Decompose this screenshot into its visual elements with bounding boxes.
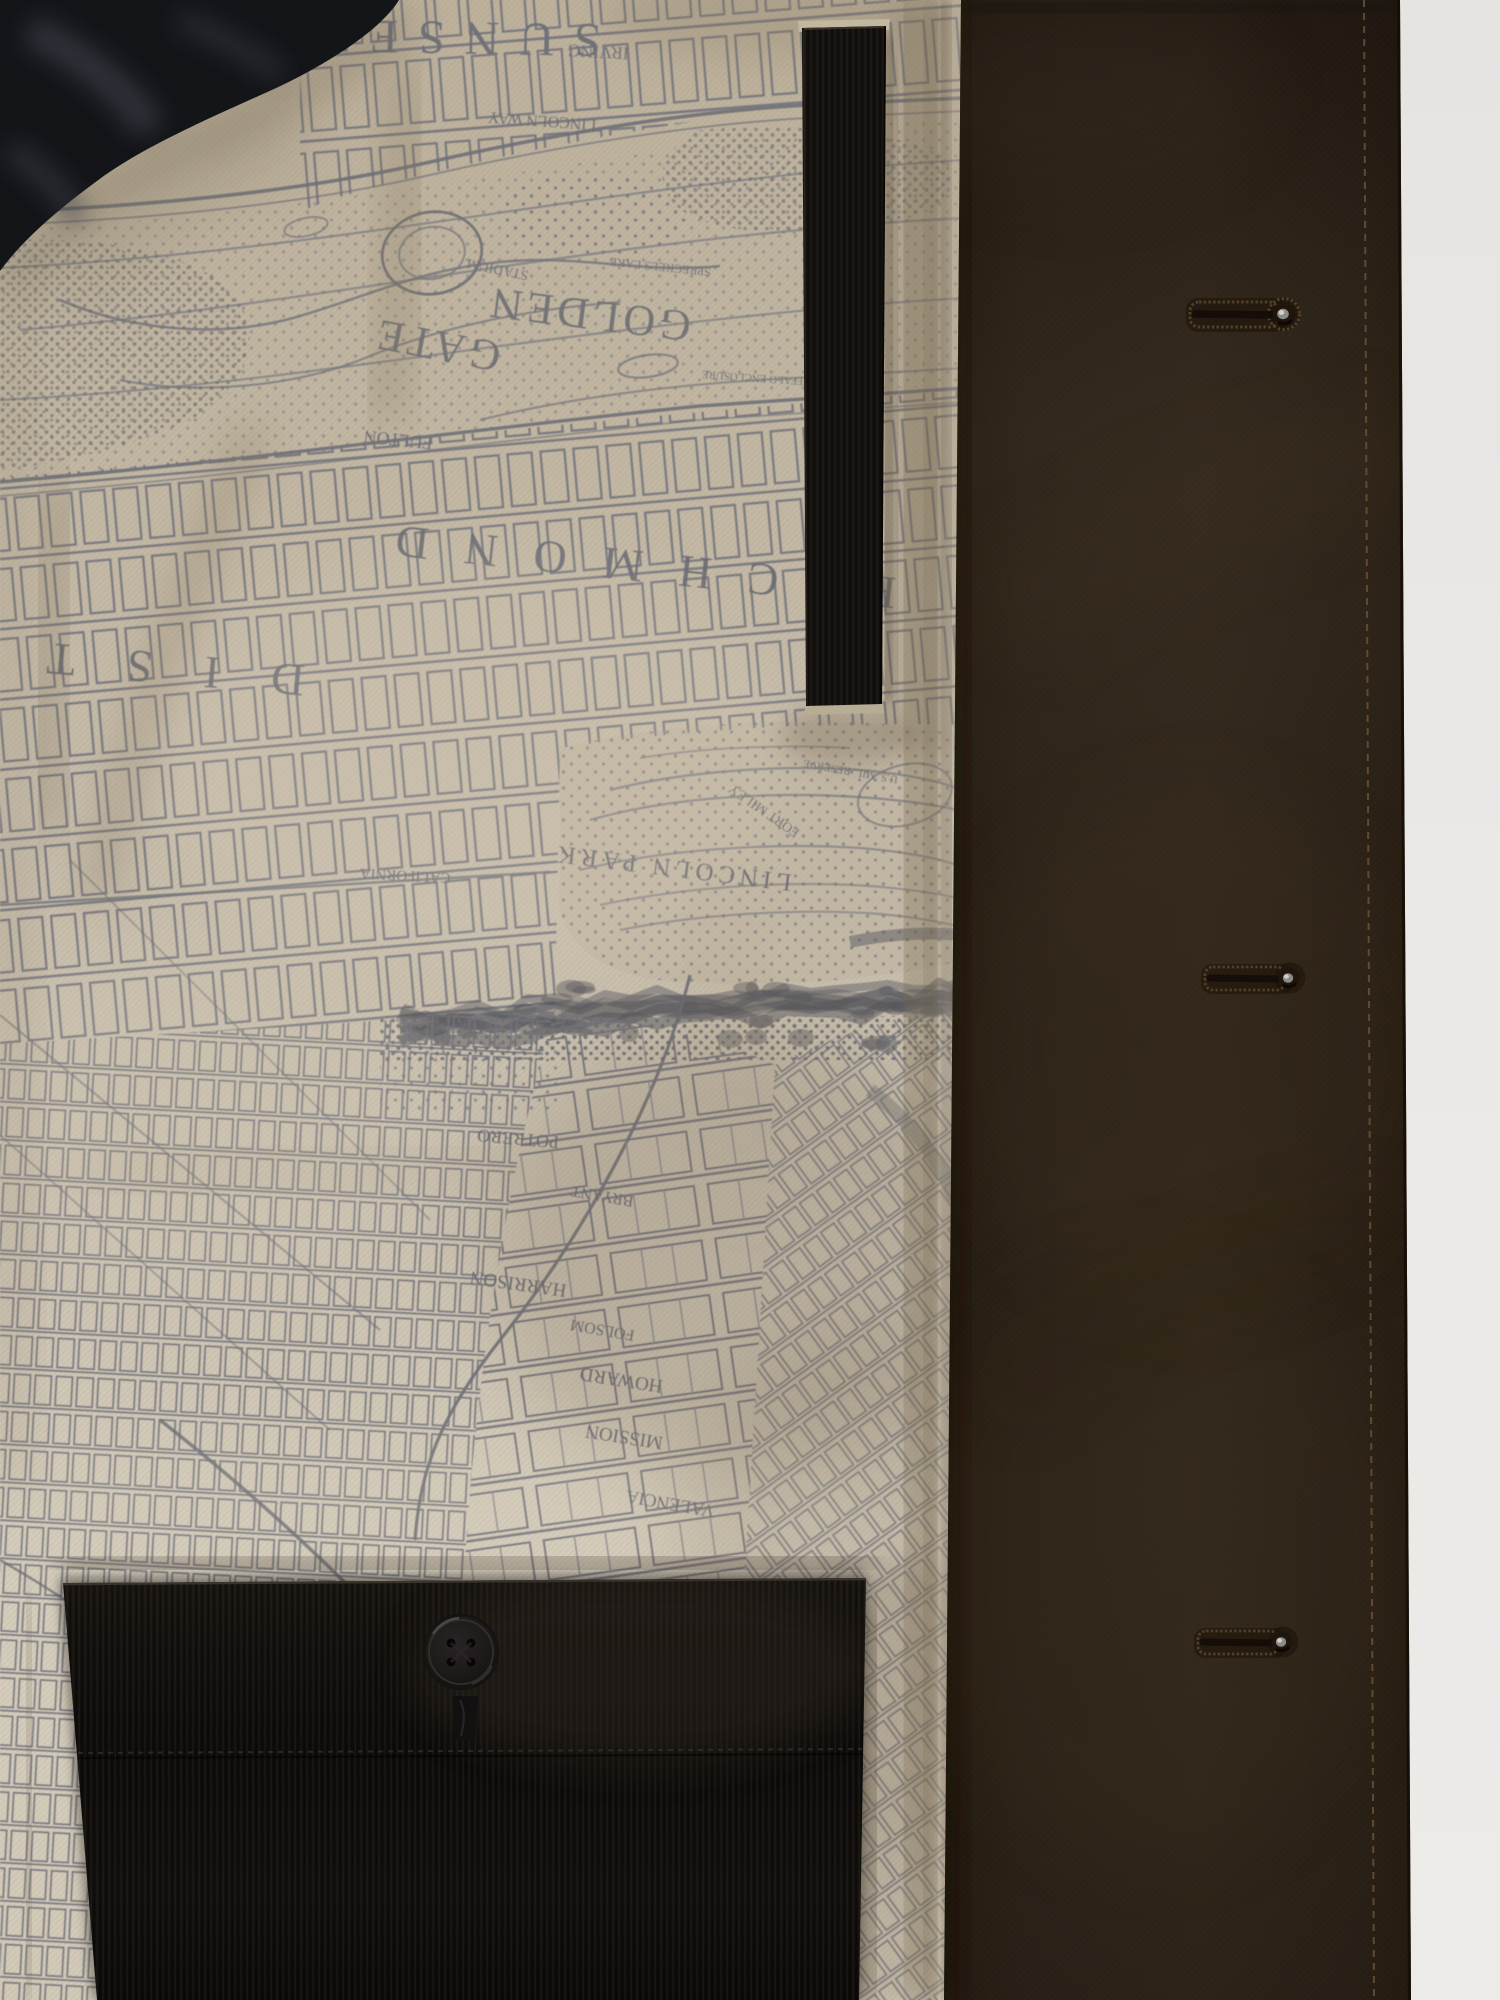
svg-text:IRVING: IRVING	[567, 40, 630, 63]
